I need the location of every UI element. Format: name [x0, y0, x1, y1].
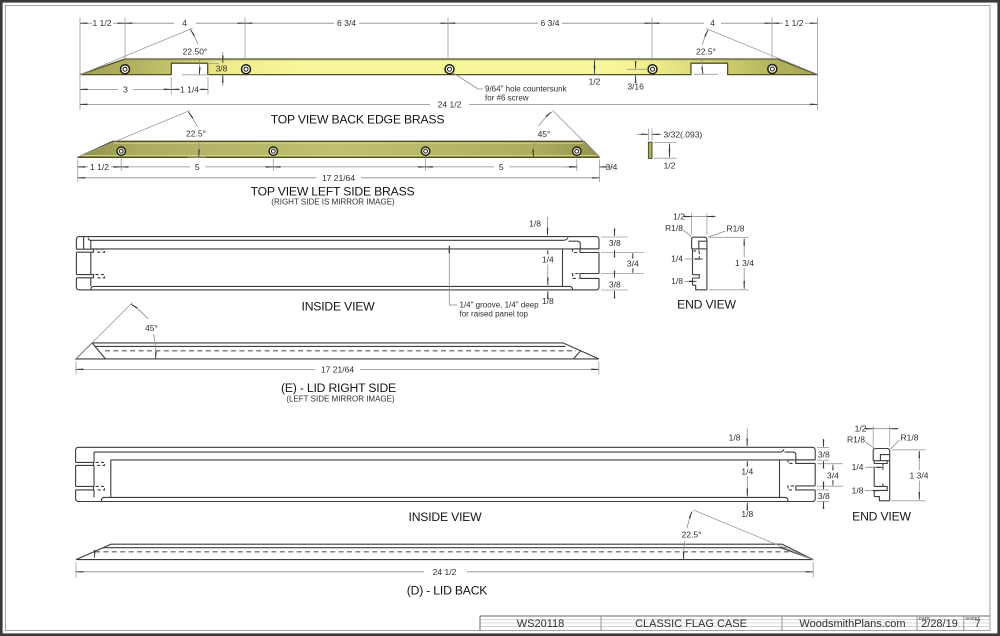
svg-text:1/2: 1/2	[589, 77, 601, 87]
svg-text:7: 7	[974, 618, 980, 630]
svg-text:3/8: 3/8	[818, 450, 830, 460]
svg-text:24 1/2: 24 1/2	[433, 567, 457, 577]
svg-text:1/8: 1/8	[529, 219, 541, 229]
svg-text:for #6 screw: for #6 screw	[485, 94, 529, 103]
svg-text:3/4: 3/4	[627, 259, 639, 269]
svg-text:3/8: 3/8	[818, 491, 830, 501]
svg-text:for raised panel top: for raised panel top	[460, 310, 529, 319]
svg-text:5: 5	[195, 162, 200, 172]
svg-text:17 21/64: 17 21/64	[322, 173, 355, 183]
svg-text:(D) - LID BACK: (D) - LID BACK	[407, 583, 488, 597]
svg-text:3: 3	[123, 84, 128, 94]
svg-text:4: 4	[182, 18, 187, 28]
svg-text:6 3/4: 6 3/4	[541, 18, 560, 28]
svg-text:1/4: 1/4	[542, 255, 554, 265]
svg-text:R1/8: R1/8	[727, 224, 745, 234]
svg-text:3/4: 3/4	[827, 470, 839, 480]
svg-text:17 21/64: 17 21/64	[321, 364, 354, 374]
svg-text:1 1/2: 1 1/2	[785, 18, 804, 28]
svg-text:WoodsmithPlans.com: WoodsmithPlans.com	[799, 618, 905, 630]
svg-text:3/32(.093): 3/32(.093)	[664, 129, 703, 139]
svg-text:1/2: 1/2	[673, 212, 685, 222]
svg-text:9/64" hole countersunk: 9/64" hole countersunk	[485, 85, 568, 94]
svg-text:TOP VIEW LEFT SIDE BRASS: TOP VIEW LEFT SIDE BRASS	[251, 185, 415, 199]
svg-text:1 3/4: 1 3/4	[910, 470, 929, 480]
svg-text:1/8: 1/8	[852, 485, 864, 495]
svg-text:1 1/2: 1 1/2	[93, 18, 112, 28]
svg-text:2/28/19: 2/28/19	[921, 618, 958, 630]
svg-text:1/4: 1/4	[671, 254, 683, 264]
svg-text:1 1/2: 1 1/2	[90, 162, 109, 172]
svg-text:22.50°: 22.50°	[183, 47, 208, 57]
svg-text:(E) - LID RIGHT SIDE: (E) - LID RIGHT SIDE	[281, 381, 396, 395]
svg-text:1/4" groove, 1/4" deep: 1/4" groove, 1/4" deep	[460, 301, 540, 310]
svg-text:(RIGHT SIDE IS MIRROR IMAGE): (RIGHT SIDE IS MIRROR IMAGE)	[271, 198, 395, 207]
svg-text:3/16: 3/16	[627, 82, 644, 92]
svg-text:INSIDE VIEW: INSIDE VIEW	[409, 510, 483, 524]
svg-text:3/4: 3/4	[606, 162, 618, 172]
svg-text:R1/8: R1/8	[665, 223, 683, 233]
svg-text:INSIDE VIEW: INSIDE VIEW	[302, 299, 376, 313]
svg-text:45°: 45°	[538, 129, 551, 139]
svg-text:1 3/4: 1 3/4	[735, 258, 754, 268]
svg-text:3/8: 3/8	[609, 279, 621, 289]
svg-text:1 1/4: 1 1/4	[180, 84, 199, 94]
svg-text:1/8: 1/8	[729, 433, 741, 443]
svg-text:END VIEW: END VIEW	[852, 510, 911, 524]
svg-text:4: 4	[710, 18, 715, 28]
svg-text:TOP VIEW BACK EDGE BRASS: TOP VIEW BACK EDGE BRASS	[271, 113, 445, 127]
svg-text:6 3/4: 6 3/4	[337, 18, 356, 28]
svg-text:1/8: 1/8	[741, 509, 753, 519]
svg-text:(LEFT SIDE MIRROR IMAGE): (LEFT SIDE MIRROR IMAGE)	[286, 395, 395, 404]
svg-text:1/2: 1/2	[855, 424, 867, 434]
svg-text:5: 5	[499, 162, 504, 172]
svg-text:3/8: 3/8	[216, 63, 228, 73]
svg-text:22.5°: 22.5°	[186, 129, 206, 139]
svg-text:3/8: 3/8	[609, 238, 621, 248]
svg-text:1/4: 1/4	[852, 462, 864, 472]
svg-text:22.5°: 22.5°	[682, 530, 702, 540]
svg-text:R1/8: R1/8	[901, 433, 919, 443]
svg-text:1/8: 1/8	[671, 276, 683, 286]
svg-text:45°: 45°	[145, 323, 158, 333]
svg-text:24 1/2: 24 1/2	[438, 99, 462, 109]
svg-text:1/2: 1/2	[664, 160, 676, 170]
svg-text:WS20118: WS20118	[517, 618, 565, 630]
svg-text:1/4: 1/4	[741, 467, 753, 477]
svg-text:22.5°: 22.5°	[696, 47, 716, 57]
svg-text:CLASSIC FLAG CASE: CLASSIC FLAG CASE	[635, 618, 747, 630]
svg-text:1/8: 1/8	[542, 296, 554, 306]
svg-text:R1/8: R1/8	[847, 435, 865, 445]
svg-text:END VIEW: END VIEW	[677, 298, 736, 312]
